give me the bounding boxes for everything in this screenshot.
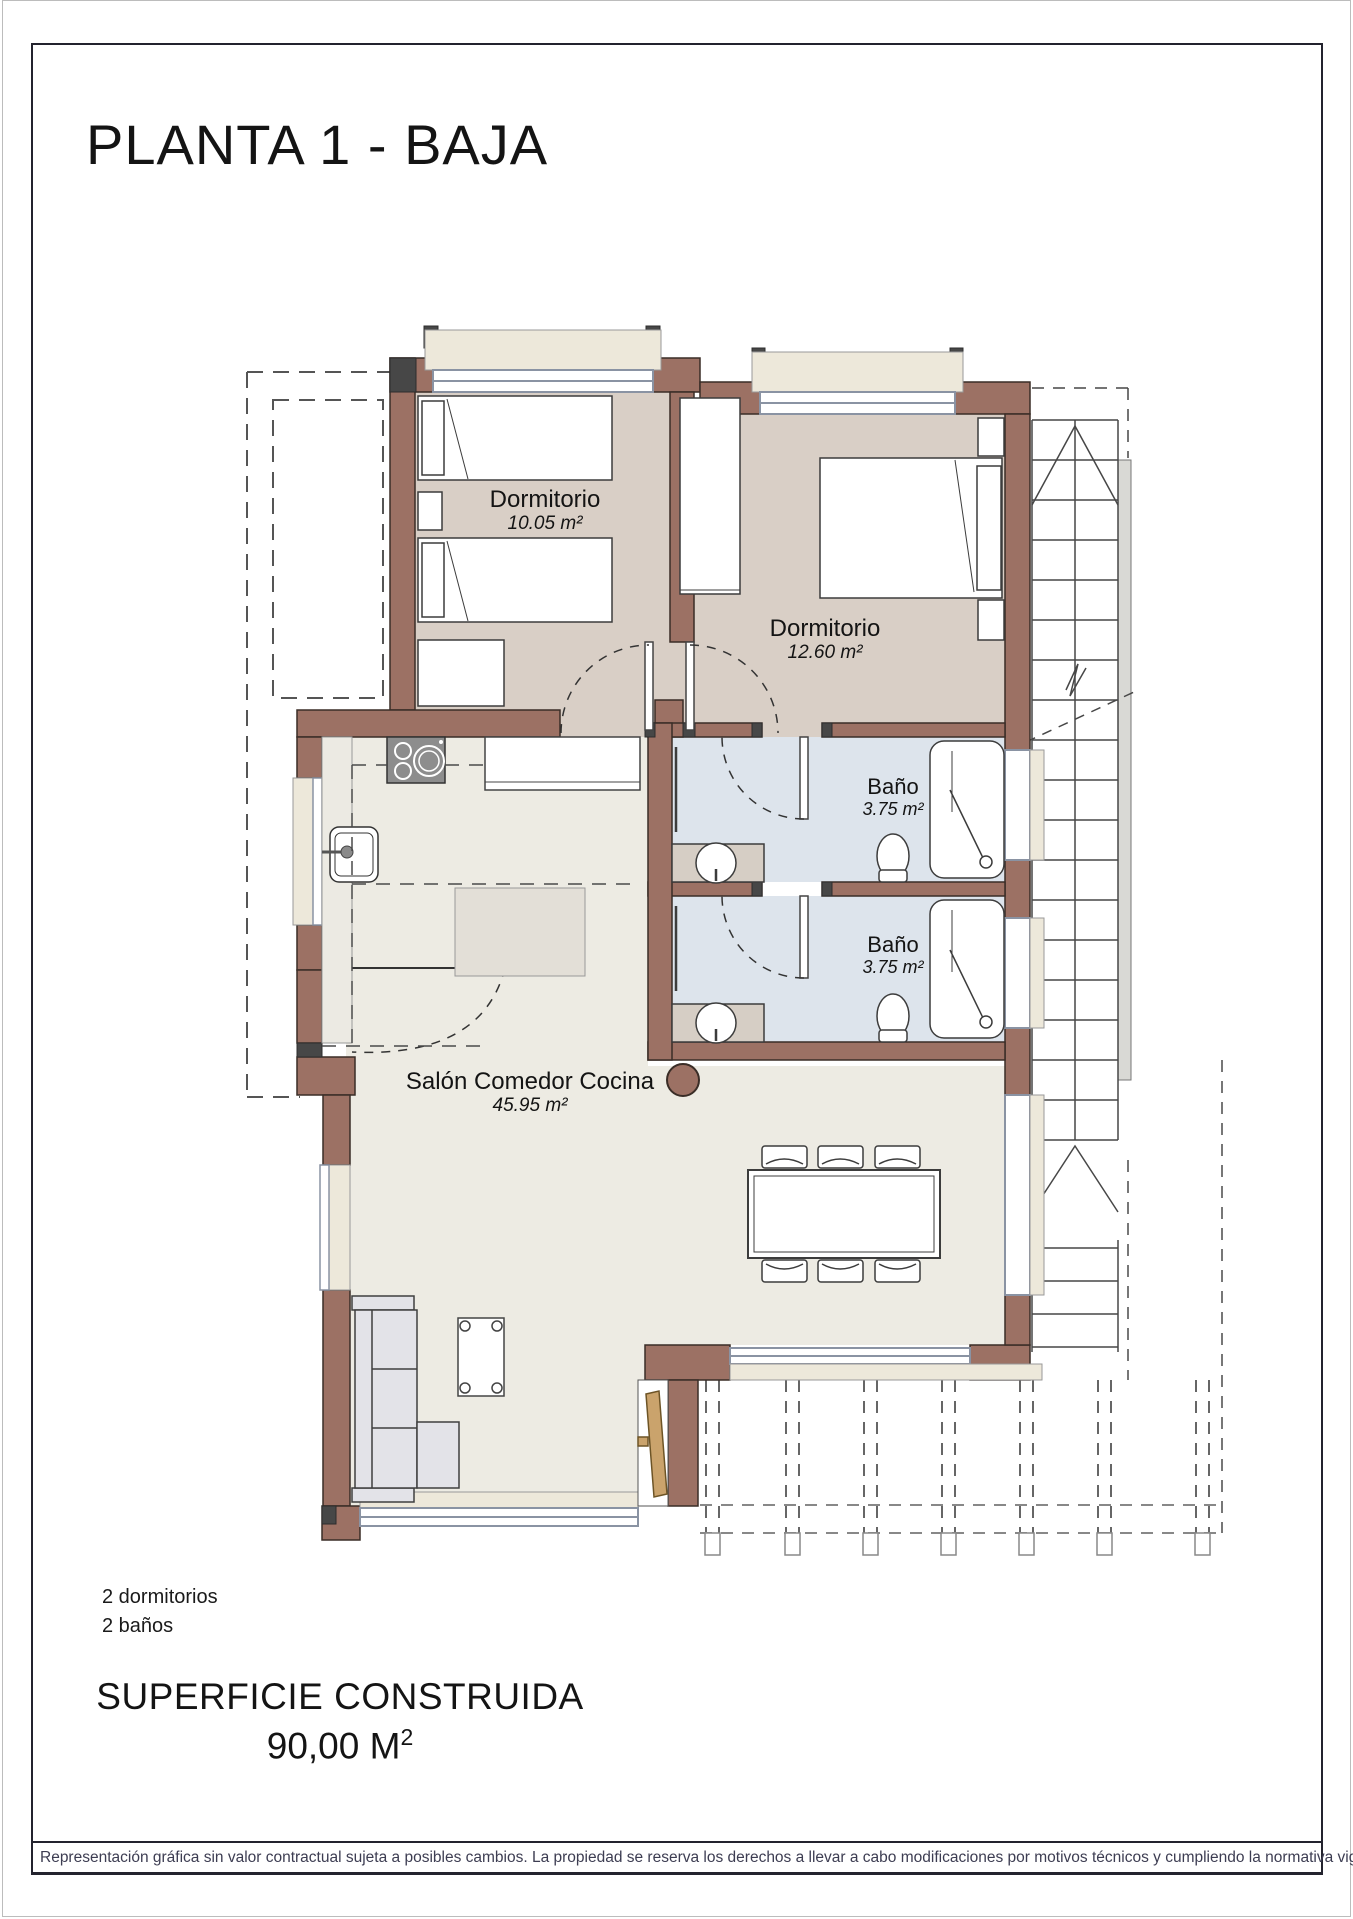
kitchen-sink (322, 827, 378, 882)
bedroom-1-label: Dormitorio (445, 487, 645, 512)
living-room-label: Salón Comedor Cocina (370, 1069, 690, 1094)
pergola-post-stubs (705, 1533, 1210, 1555)
bedroom-2-area: 12.60 m² (725, 643, 925, 663)
built-area-value: 90,00 M2 (80, 1724, 600, 1767)
pillow (422, 401, 444, 475)
floor-plan-page: { "title": "PLANTA 1 - BAJA", "rooms": {… (0, 0, 1353, 1919)
nightstand (418, 492, 442, 530)
stair-break-zigzag (1066, 664, 1086, 696)
kitchen-island (455, 888, 585, 976)
bedroom-1-area: 10.05 m² (445, 514, 645, 534)
bathroom-2-area: 3.75 m² (820, 958, 966, 977)
nightstand (978, 600, 1004, 640)
pillow (422, 543, 444, 617)
summary-bedrooms: 2 dormitorios (102, 1583, 218, 1612)
dresser (418, 640, 504, 706)
bathroom-1-area: 3.75 m² (820, 800, 966, 819)
coffee-table (458, 1318, 504, 1396)
cooktop (387, 737, 445, 783)
single-bed (418, 396, 612, 480)
headboard (977, 466, 1001, 590)
sofa-chaise (417, 1422, 459, 1488)
double-bed (820, 458, 1002, 598)
rooms-summary: 2 dormitorios 2 baños (102, 1583, 218, 1641)
entry-door-handle (638, 1437, 648, 1446)
bedroom-2-label: Dormitorio (725, 616, 925, 641)
nightstand (978, 418, 1004, 456)
summary-bathrooms: 2 baños (102, 1612, 218, 1641)
pergola-posts-dashed (706, 1380, 1209, 1533)
footer-disclaimer-text: Representación gráfica sin valor contrac… (33, 1849, 1353, 1867)
stair-direction-arrow-lower (1032, 1146, 1118, 1212)
kitchen-counter-left (322, 737, 352, 1043)
bathroom-2-label: Baño (820, 933, 966, 956)
dining-table (748, 1170, 940, 1258)
kitchen-appliance-counter (485, 737, 640, 790)
single-bed (418, 538, 612, 622)
window-sill (425, 330, 661, 370)
living-room-area: 45.95 m² (370, 1096, 690, 1116)
wardrobe (680, 398, 740, 594)
built-area-block: SUPERFICIE CONSTRUIDA 90,00 M2 (80, 1676, 600, 1767)
built-area-label: SUPERFICIE CONSTRUIDA (80, 1676, 600, 1718)
footer-disclaimer-bar: Representación gráfica sin valor contrac… (31, 1841, 1323, 1874)
bathroom-1-label: Baño (820, 775, 966, 798)
